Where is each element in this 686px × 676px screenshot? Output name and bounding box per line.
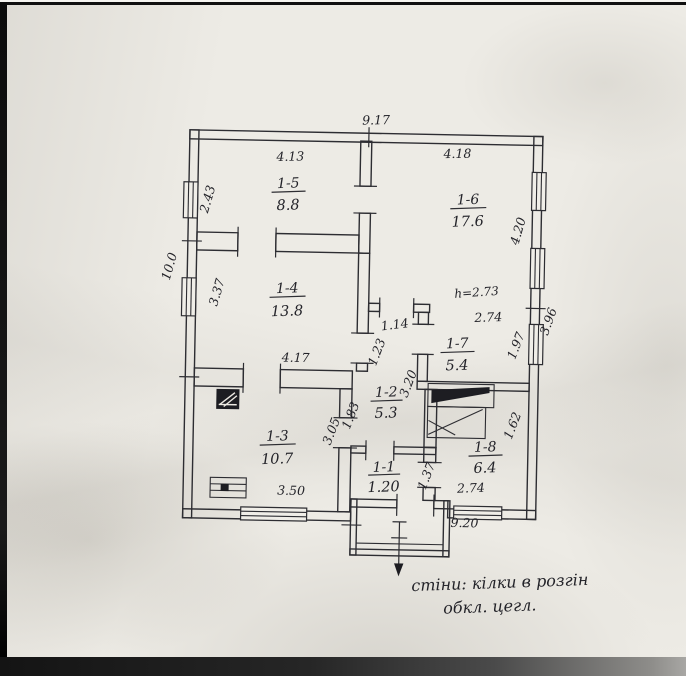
window-icon bbox=[530, 248, 545, 288]
dim-r4-bottom: 4.17 bbox=[281, 350, 310, 366]
dim-r7-top: 2.74 bbox=[473, 309, 502, 325]
room-number: 1-5 bbox=[277, 175, 300, 192]
ceiling-height-note: h=2.73 bbox=[454, 284, 500, 301]
handwritten-note: стіни: кілки в розгін обкл. цегл. bbox=[411, 570, 589, 618]
room-area: 17.6 bbox=[451, 214, 484, 231]
dim-r8-right: 1.62 bbox=[500, 410, 524, 441]
dim-hall-width: 1.14 bbox=[380, 315, 409, 333]
dim-r5-top: 4.13 bbox=[275, 149, 304, 164]
scanned-floorplan-page: 1-5 8.8 1-6 17.6 1-4 13.8 1-7 5. bbox=[0, 0, 686, 676]
room-1-3-label: 1-3 10.7 bbox=[259, 428, 296, 468]
room-area: 10.7 bbox=[261, 451, 295, 468]
dim-overall-bottom: 9.20 bbox=[450, 515, 478, 531]
furnace-icon bbox=[217, 389, 239, 408]
room-1-6-label: 1-6 17.6 bbox=[450, 192, 487, 231]
window-icon bbox=[241, 507, 307, 521]
room-1-8-label: 1-8 6.4 bbox=[468, 439, 503, 477]
room-number: 1-7 bbox=[446, 336, 469, 353]
room-number: 1-4 bbox=[276, 280, 299, 297]
dim-r3-bottom: 3.50 bbox=[277, 483, 305, 499]
room-area: 6.4 bbox=[473, 460, 497, 477]
room-labels: 1-5 8.8 1-6 17.6 1-4 13.8 1-7 5. bbox=[258, 174, 509, 498]
window-icon bbox=[532, 172, 547, 210]
floorplan-drawing: 1-5 8.8 1-6 17.6 1-4 13.8 1-7 5. bbox=[0, 0, 686, 676]
room-area: 5.4 bbox=[445, 358, 469, 375]
room-number: 1-2 bbox=[375, 384, 398, 401]
room-1-1-label: 1-1 1.20 bbox=[367, 459, 401, 496]
room-number: 1-3 bbox=[266, 428, 289, 445]
dim-r7-right: 1.97 bbox=[504, 330, 528, 361]
dim-r8-bottom: 2.74 bbox=[456, 480, 485, 496]
room-area: 5.3 bbox=[374, 405, 398, 422]
room-1-5-label: 1-5 8.8 bbox=[271, 175, 306, 214]
dim-overall-top: 9.17 bbox=[362, 112, 390, 127]
room-number: 1-8 bbox=[474, 439, 497, 456]
note-line-2: обкл. цегл. bbox=[443, 595, 537, 617]
dim-r6-right-windows: 4.20 bbox=[506, 215, 528, 247]
window-icon bbox=[183, 182, 198, 218]
radiator-icon bbox=[210, 477, 246, 498]
dimension-labels: 9.17 9.20 10.0 3.96 4.13 4.18 2.43 4.20 … bbox=[153, 108, 563, 532]
dim-r1-side: 1.37 bbox=[414, 460, 438, 491]
room-area: 13.8 bbox=[271, 303, 304, 320]
room-1-7-label: 1-7 5.4 bbox=[440, 335, 475, 374]
dim-r3-door-side: 3.05 bbox=[319, 415, 343, 446]
room-number: 1-1 bbox=[372, 459, 395, 476]
dim-r5-left: 2.43 bbox=[196, 183, 218, 215]
dim-r3-upper-side: 1.83 bbox=[338, 400, 362, 431]
dim-corridor-length: 3.20 bbox=[396, 368, 420, 399]
dim-r6-top: 4.18 bbox=[442, 146, 471, 161]
note-line-1: стіни: кілки в розгін bbox=[411, 570, 589, 595]
dim-hall-height: 1.23 bbox=[365, 336, 389, 367]
window-icon bbox=[181, 278, 196, 316]
room-area: 1.20 bbox=[367, 479, 400, 496]
entrance-arrow-icon bbox=[390, 522, 407, 575]
room-1-4-label: 1-4 13.8 bbox=[269, 280, 306, 320]
dim-overall-left: 10.0 bbox=[158, 251, 180, 282]
interior-walls bbox=[192, 138, 534, 515]
dim-r4-left: 3.37 bbox=[205, 277, 227, 308]
room-area: 8.8 bbox=[276, 197, 300, 214]
room-number: 1-6 bbox=[456, 192, 479, 209]
